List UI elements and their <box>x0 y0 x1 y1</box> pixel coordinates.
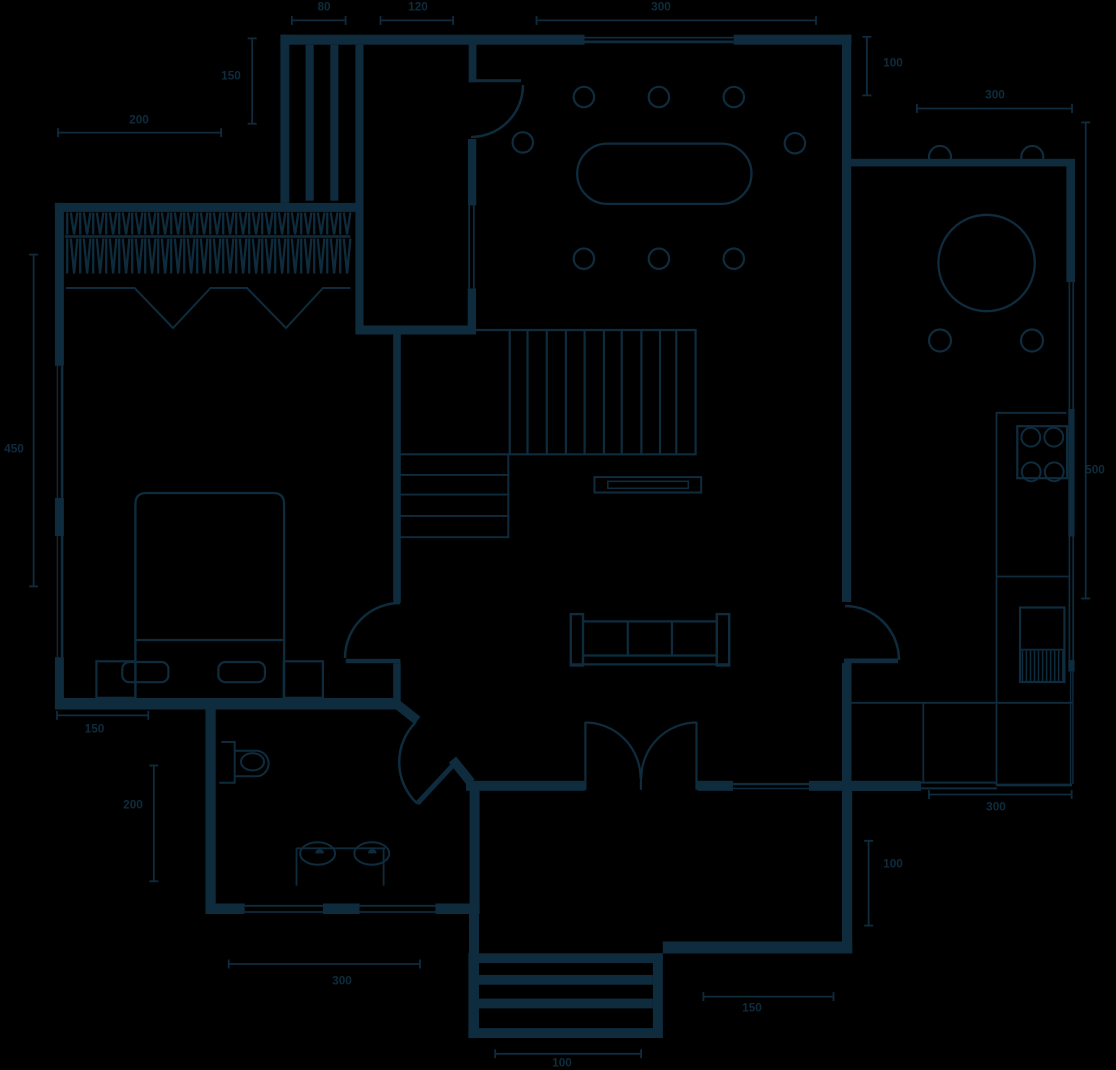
svg-text:300: 300 <box>651 0 671 14</box>
svg-text:500: 500 <box>1085 463 1105 477</box>
svg-text:450: 450 <box>4 442 24 456</box>
svg-text:120: 120 <box>408 0 428 14</box>
svg-text:300: 300 <box>985 88 1005 102</box>
svg-text:150: 150 <box>221 69 241 83</box>
svg-text:100: 100 <box>552 1056 572 1070</box>
svg-text:100: 100 <box>883 857 903 871</box>
svg-text:300: 300 <box>986 800 1006 814</box>
svg-text:300: 300 <box>332 974 352 988</box>
svg-text:150: 150 <box>85 722 105 736</box>
svg-text:100: 100 <box>883 56 903 70</box>
svg-text:80: 80 <box>317 0 331 14</box>
svg-text:200: 200 <box>129 113 149 127</box>
svg-text:200: 200 <box>123 798 143 812</box>
svg-text:150: 150 <box>742 1001 762 1015</box>
